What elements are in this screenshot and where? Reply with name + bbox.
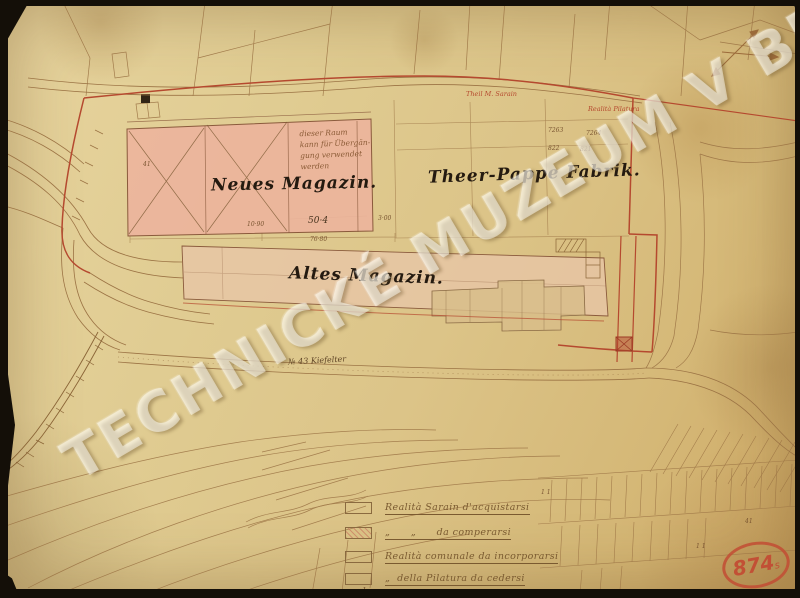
red-annotation-group: Theil M. Sarain Realità Pilatura [466, 90, 640, 113]
scan-edge-top [0, 0, 800, 6]
dimension-label: 3·00 [378, 215, 392, 222]
legend-swatch-1 [345, 502, 372, 514]
scanned-map-document: 7263 7264 822 821 41 10·90 50·4 76·80 3·… [0, 0, 800, 598]
scan-edge-right [795, 0, 800, 598]
compass-icon [712, 30, 778, 76]
parcel-number: 7263 [548, 127, 563, 134]
legend-item-2: „ „ da comperarsi [345, 527, 511, 540]
right-terrain [646, 122, 798, 368]
dimension-label: 76·80 [310, 236, 327, 243]
legend-label-1: Realità Sarain d'acquistarsi [385, 502, 530, 515]
red-annotation-pilatura: Realità Pilatura [587, 105, 640, 113]
handwritten-note: dieser Raum kann für Übergän- gung verwe… [299, 126, 371, 172]
railway [0, 332, 104, 474]
hatched-structure [556, 239, 586, 252]
legend-swatch-4 [345, 573, 372, 585]
legend-label-2: „ „ da comperarsi [385, 527, 511, 540]
parcel-number: 821 [580, 146, 591, 153]
top-road [28, 77, 642, 103]
legend-item-3: Realità comunale da incorporarsi [345, 551, 558, 564]
scan-edge-left [0, 0, 8, 598]
legend-label-3: Realità comunale da incorporarsi [385, 551, 558, 564]
stamp-number: 874 [731, 550, 776, 581]
neues-magazin-label: Neues Magazin. [211, 173, 377, 196]
red-annotation-sarain: Theil M. Sarain [466, 90, 517, 98]
legend-swatch-3 [345, 551, 372, 563]
field-number: 41 [744, 518, 753, 525]
filled-building-mark [141, 94, 150, 103]
field-number: 1 1 [696, 543, 706, 550]
legend-item-1: Realità Sarain d'acquistarsi [345, 502, 530, 515]
dimension-label: 50·4 [308, 216, 328, 226]
dimension-label: 10·90 [247, 221, 264, 228]
legend-label-4: „ della Pilatura da cedersi [385, 573, 525, 586]
parcel-number: 822 [548, 145, 560, 152]
field-number: 1 1 [541, 489, 551, 496]
parcel-number: 7264 [586, 130, 601, 137]
parcel-number: 41 [142, 161, 151, 168]
scan-edge-bottom [0, 589, 800, 598]
field-boundaries-top [62, 0, 798, 119]
legend-item-4: „ della Pilatura da cedersi [345, 573, 525, 586]
red-structure-mark [616, 337, 632, 351]
legend-swatch-2 [345, 527, 372, 539]
stamp-suffix: s [774, 559, 781, 571]
